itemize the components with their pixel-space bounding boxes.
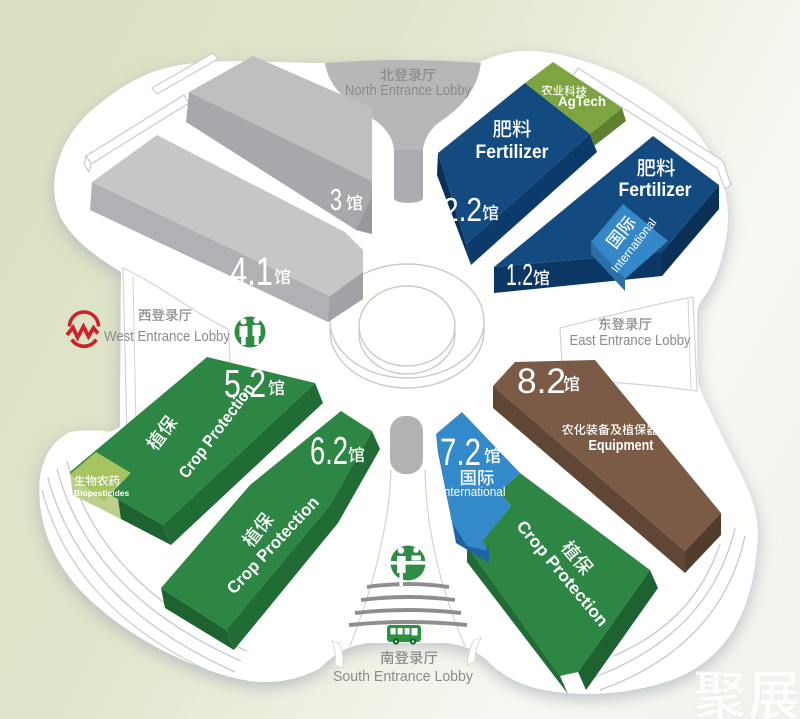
svg-text:7.2: 7.2 (440, 432, 481, 474)
svg-text:4.1: 4.1 (230, 250, 273, 294)
svg-text:East Entrance Lobby: East Entrance Lobby (570, 333, 692, 349)
svg-text:South Entrance Lobby: South Entrance Lobby (333, 668, 473, 685)
svg-text:North Entrance Lobby: North Entrance Lobby (345, 83, 472, 99)
svg-text:International: International (441, 485, 506, 499)
svg-text:Biopesticides: Biopesticides (74, 488, 130, 498)
svg-text:AgTech: AgTech (558, 93, 606, 109)
svg-text:Fertilizer: Fertilizer (476, 141, 549, 163)
svg-text:West Entrance Lobby: West Entrance Lobby (104, 329, 231, 345)
svg-text:2.2: 2.2 (443, 191, 482, 228)
svg-text:1.2: 1.2 (506, 257, 533, 292)
svg-text:6.2: 6.2 (310, 430, 348, 473)
svg-text:8.2: 8.2 (517, 362, 566, 401)
svg-text:Fertilizer: Fertilizer (619, 179, 692, 201)
svg-text:3: 3 (330, 182, 342, 217)
svg-text:Equipment: Equipment (589, 438, 654, 454)
